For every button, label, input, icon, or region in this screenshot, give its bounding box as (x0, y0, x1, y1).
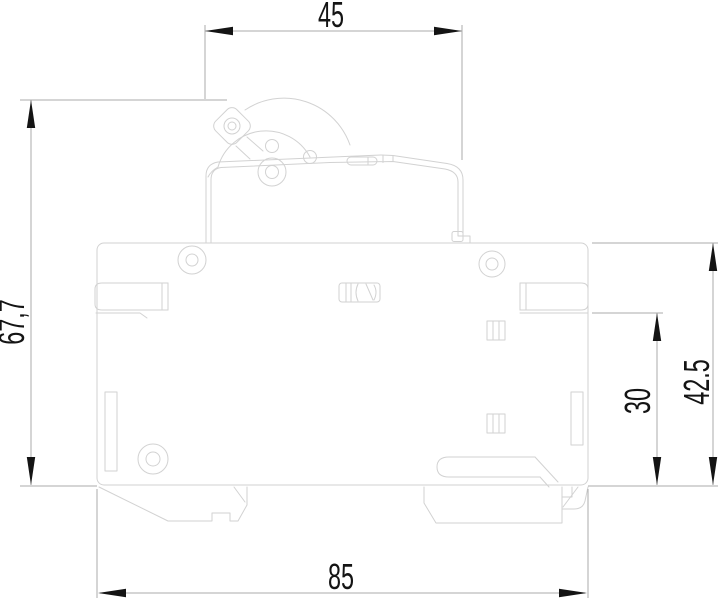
left-din-clip (99, 487, 247, 521)
toggle-knob (211, 105, 253, 147)
left-terminal (95, 283, 168, 318)
striped-detail-lower (487, 414, 505, 433)
toggle-pivot (258, 158, 286, 186)
right-terminal (520, 283, 588, 313)
dimension-arrowheads (27, 27, 717, 597)
technical-drawing-canvas: 45 67,7 42.5 30 85 (0, 0, 720, 600)
right-din-latch (424, 457, 588, 523)
swing-arc (245, 98, 350, 145)
latch-spring (437, 457, 540, 477)
dim-label-overall-height: 67,7 (0, 299, 32, 345)
dimension-overall-height (20, 100, 227, 486)
dimension-top-width (205, 25, 462, 160)
dimension-lines (20, 25, 718, 598)
dim-label-bottom-width: 85 (328, 558, 354, 597)
dim-label-right-height: 42.5 (678, 359, 717, 405)
rivets (138, 246, 505, 474)
upper-housing-outline (206, 155, 470, 243)
handle-slot (347, 157, 377, 165)
striped-detail-upper (487, 321, 505, 340)
breaker-side-view-drawing: 45 67,7 42.5 30 85 (0, 0, 720, 600)
right-side-slot (571, 392, 583, 445)
main-body-outline (97, 243, 588, 485)
center-clip-detail (339, 283, 380, 302)
object-lines (95, 98, 588, 523)
left-side-slot (105, 392, 117, 471)
dim-label-din-offset: 30 (619, 388, 658, 414)
toggle-lever (208, 98, 350, 186)
dim-label-top-width: 45 (318, 0, 344, 35)
dimension-labels: 45 67,7 42.5 30 85 (0, 0, 717, 597)
